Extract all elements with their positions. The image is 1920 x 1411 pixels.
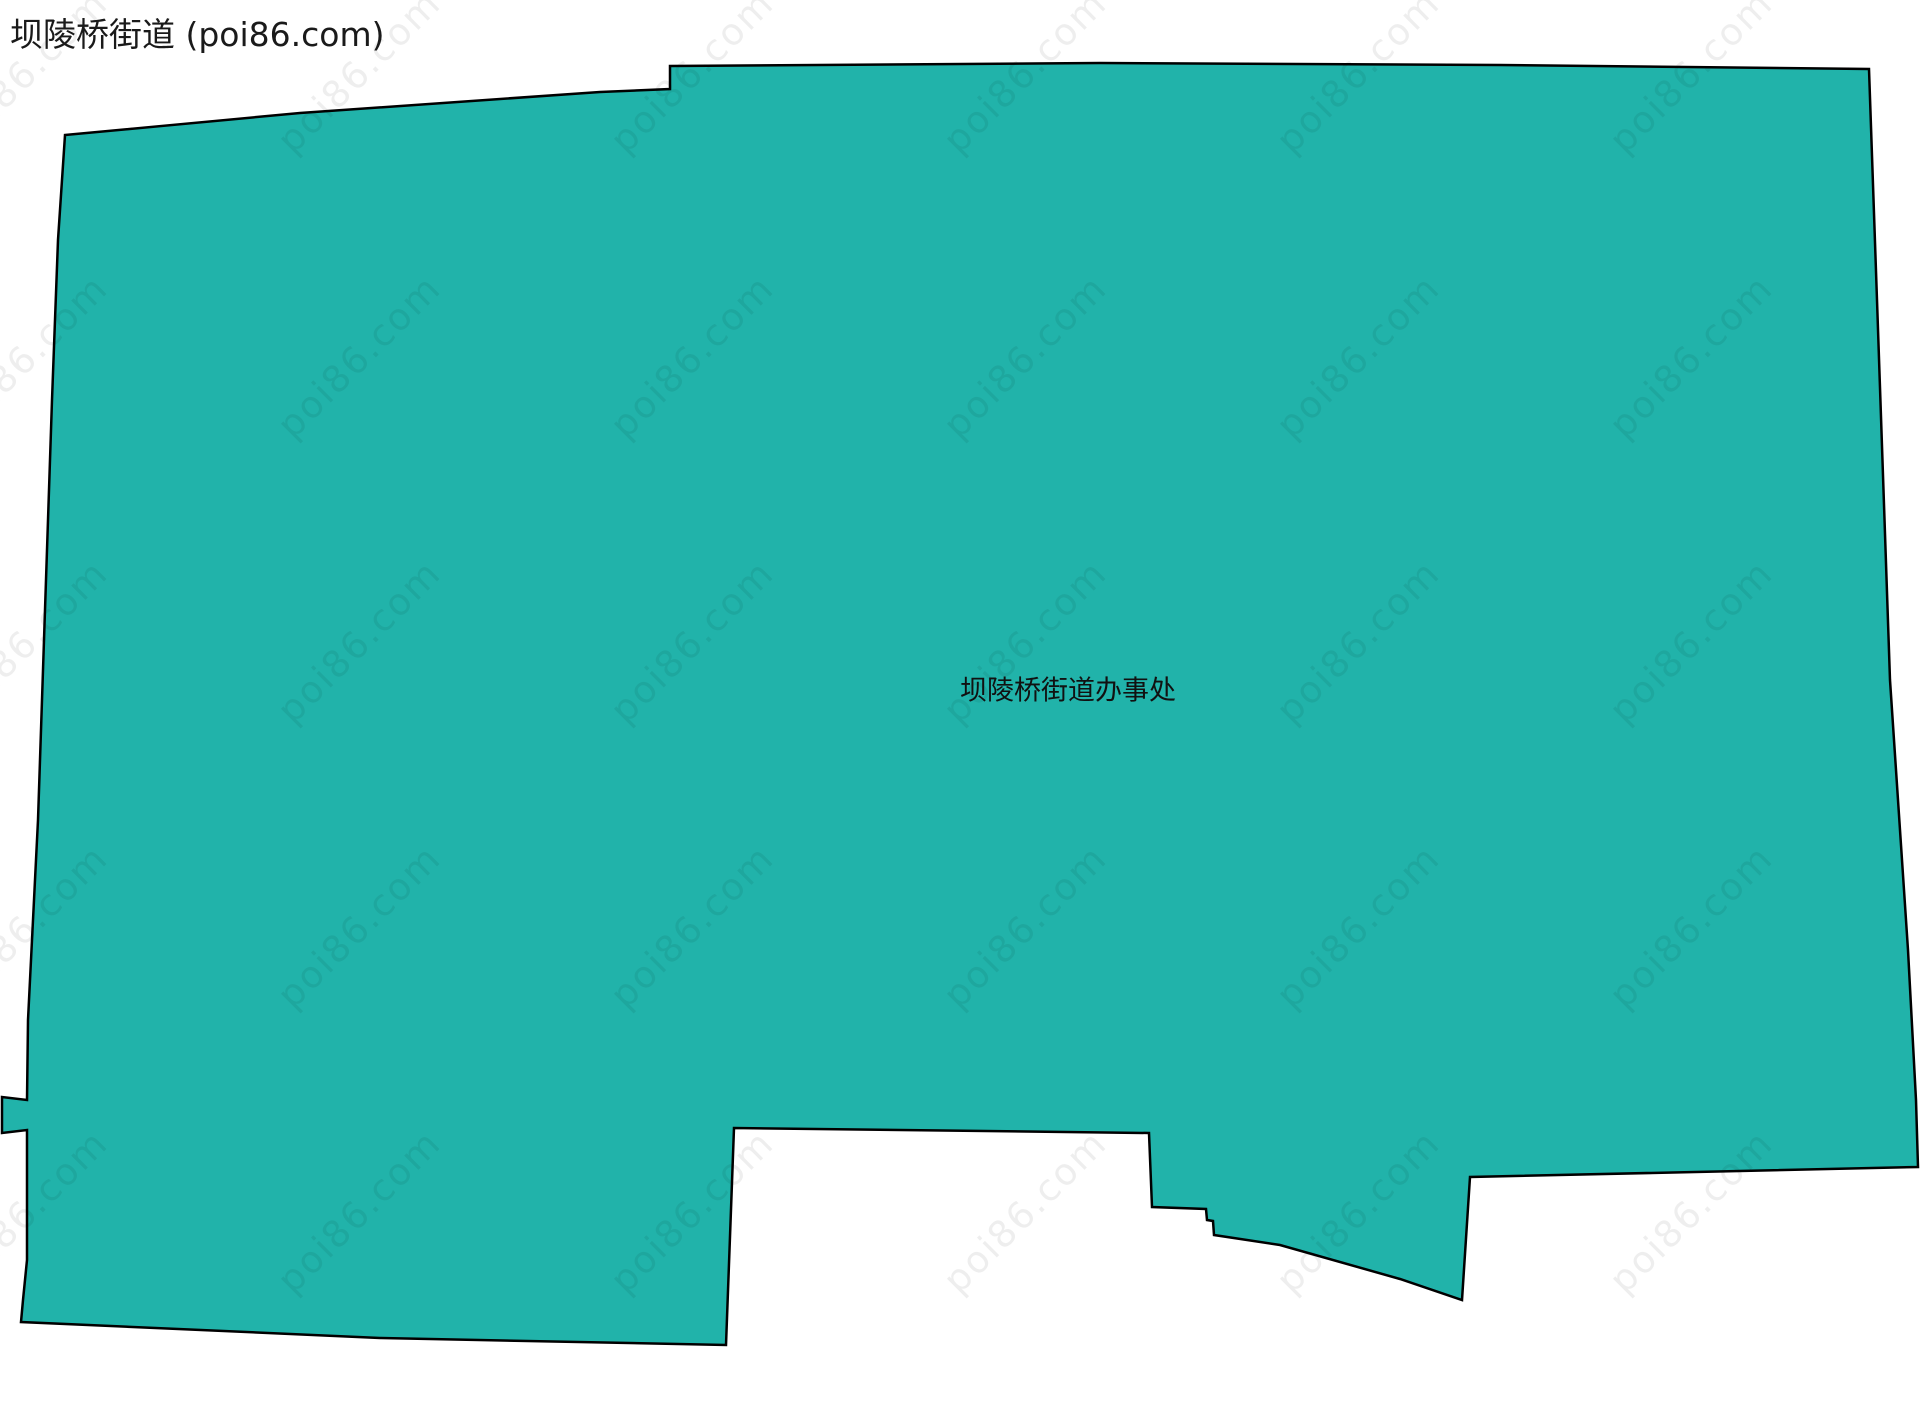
map-page: poi86.compoi86.compoi86.compoi86.compoi8…: [0, 0, 1920, 1411]
region-label: 坝陵桥街道办事处: [960, 669, 1176, 708]
page-title: 坝陵桥街道 (poi86.com): [10, 8, 385, 56]
